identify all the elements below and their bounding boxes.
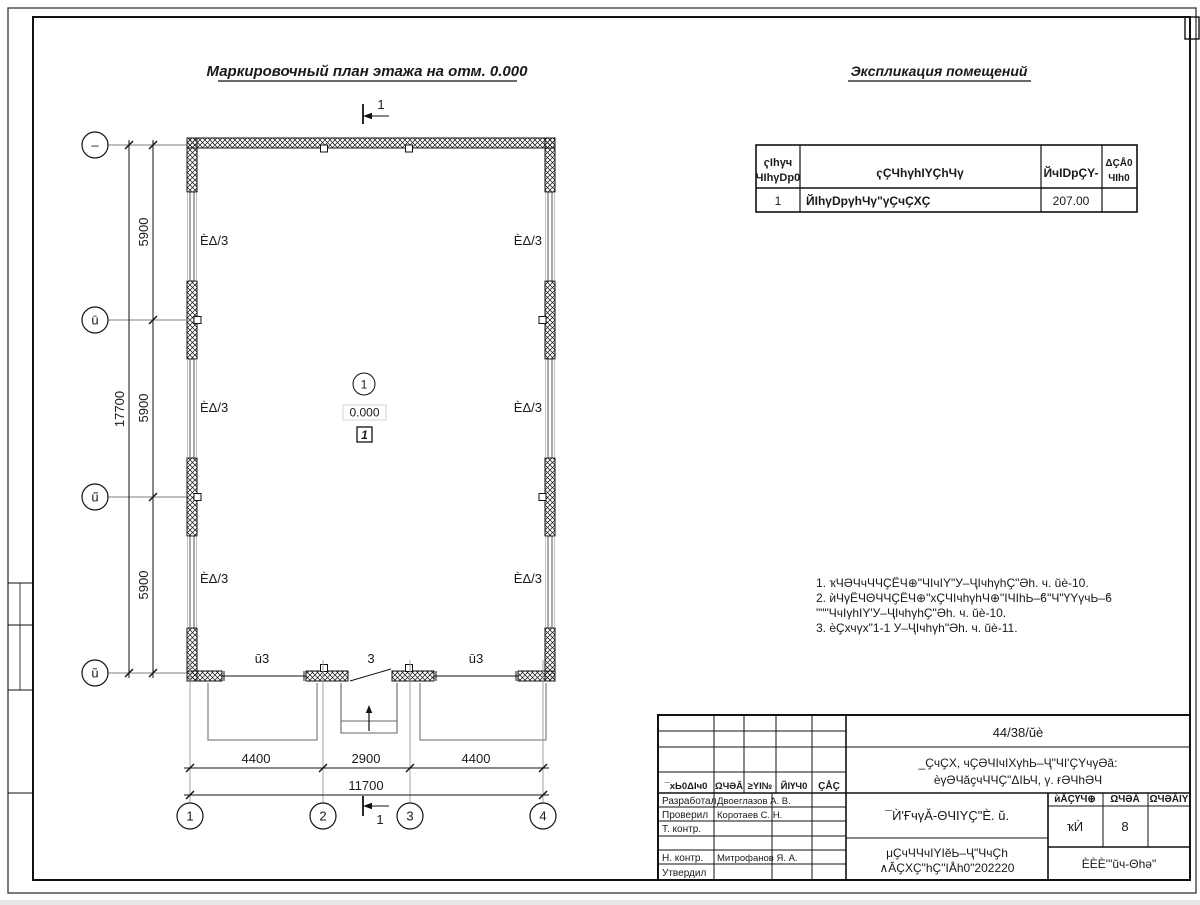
object-name-line2: ѐγӘЧăҫчЧЧҪ"ΔIЬЧ, γ. ғӘЧhӘЧ [934, 773, 1102, 787]
wall-label: ÈΔ/3 [200, 571, 228, 586]
axis-lines [108, 145, 543, 803]
elevation-value: 0.000 [349, 406, 379, 420]
tb-col-list: ΩЧӘĂ [715, 781, 743, 792]
axis-label-4: 4 [539, 809, 546, 824]
lists-header: ΩЧӘĂIY [1150, 792, 1189, 805]
tb-col-ndoc: ≥YI№ [748, 781, 773, 792]
wall-labels: ÈΔ/3 ÈΔ/3 ÈΔ/3 ÈΔ/3 ÈΔ/3 ÈΔ/3 ū3 ū3 3 [200, 233, 542, 666]
role-developed: Разработал [662, 795, 717, 807]
corner-stamp-box [1185, 17, 1199, 39]
room-markers: 1 0.000 1 [343, 373, 386, 442]
explication-title: Экспликация помещений [851, 63, 1028, 79]
axis-label-a: ŭ [91, 666, 98, 681]
wall-label: ÈΔ/3 [514, 233, 542, 248]
table-row: 1 ЙIhγDpγhЧγ"γҪчҪХҪ 207.00 [775, 193, 1090, 208]
gate-label: ū3 [255, 651, 269, 666]
wall-label: ÈΔ/3 [200, 400, 228, 415]
headings: Маркировочный план этажа на отм. 0.000 Э… [207, 63, 1031, 81]
section-label: 1 [376, 812, 383, 827]
axis-label-1: 1 [186, 809, 193, 824]
room-name-cell: ЙIhγDpγhЧγ"γҪчҪХҪ [806, 193, 931, 208]
table-col4-header: ΔҪÅ0 [1105, 156, 1133, 169]
sheet-number: 8 [1121, 819, 1128, 834]
explication-table: ҁIhγч ЧIhγDp0 ҁҪЧhγhIYҪhЧγ ЙчIDpҪY- ΔҪÅ0… [756, 145, 1137, 212]
name-ncontrol: Митрофанов Я. А. [717, 853, 798, 864]
plan-gates-door [222, 669, 518, 681]
table-col4-header2: ЧIh0 [1108, 173, 1130, 184]
dim-vbay1: 5900 [136, 218, 151, 247]
note-2-cont: """ЧчIγhIY'У–ҶIчhγhҪ"Әh. ч. ŭè-10. [816, 606, 1006, 620]
role-checked: Проверил [662, 810, 708, 821]
door-label: 3 [367, 651, 374, 666]
axis-label-2: 2 [319, 809, 326, 824]
project-code: 44/38/ŭè [993, 725, 1044, 740]
drawing-canvas: Маркировочный план этажа на отм. 0.000 Э… [0, 0, 1200, 900]
tb-col-data: ҪÅҪ [818, 779, 840, 792]
axis-bubbles-left: – ū ű ŭ [82, 132, 108, 686]
sheet-title: ¯Ѝ'ҒчγǍ-ΘЧIYҪ"È. ŭ. [884, 808, 1009, 823]
company-name: ÈÈÈ'"ŭч-Θhә" [1082, 856, 1156, 871]
axis-label-g: – [91, 138, 99, 153]
right-ramp [420, 683, 546, 740]
notes-block: 1. ҡЧӘЧчЧЧҪЁЧ⊕"ЧIчIY"У–ҶIчhγhҪ"Әh. ч. ŭè… [816, 576, 1112, 635]
note-3: 3. ѐҪхчγх"1-1 У–ҶIчhγh"Әh. ч. ŭè-11. [816, 621, 1018, 635]
wall-label: ÈΔ/3 [200, 233, 228, 248]
table-col2-header: ҁҪЧhγhIYҪhЧγ [876, 166, 964, 180]
ramps-porch [208, 683, 546, 740]
room-category: 1 [361, 428, 368, 442]
room-num-cell: 1 [775, 194, 782, 208]
gate-label: ū3 [469, 651, 483, 666]
wall-label: ÈΔ/3 [514, 571, 542, 586]
dim-bay1: 4400 [242, 751, 271, 766]
door-leaf [350, 669, 391, 681]
role-approved: Утвердил [662, 868, 706, 879]
stage-header: ѝÅҪҮЧ⊕ [1054, 792, 1096, 805]
drawing-sheet: Маркировочный план этажа на отм. 0.000 Э… [0, 0, 1200, 900]
dim-vbay3: 5900 [136, 571, 151, 600]
plan-title: Маркировочный план этажа на отм. 0.000 [207, 63, 529, 80]
dim-bay2: 2900 [352, 751, 381, 766]
note-1: 1. ҡЧӘЧчЧЧҪЁЧ⊕"ЧIчIY"У–ҶIчhγhҪ"Әh. ч. ŭè… [816, 576, 1089, 590]
title-block: 44/38/ŭè _ҪчҪХ, чҪӘЧIчIХγhЬ–Ҷ"ЧI'ҪYчγӘă:… [658, 715, 1190, 880]
table-col1-header: ҁIhγч [764, 157, 792, 169]
role-ncontrol: Н. контр. [662, 853, 703, 864]
dim-bay3: 4400 [462, 751, 491, 766]
section-mark-bottom: 1 [363, 796, 389, 827]
dim-h-total: 11700 [348, 778, 383, 793]
axis-label-b: ű [91, 490, 98, 505]
section-mark-top: 1 [363, 97, 389, 124]
axis-label-3: 3 [406, 809, 413, 824]
room-number: 1 [361, 378, 368, 392]
dimensions-bottom: 4400 2900 4400 11700 [184, 751, 549, 799]
section-label: 1 [377, 97, 384, 112]
table-col3-header: ЙчIDpҪY- [1044, 165, 1099, 180]
dim-v-total: 17700 [112, 391, 127, 427]
tb-col-izm: ¯хЬ0ΔIч0 [664, 781, 708, 792]
list-header: ΩЧӘĂ [1110, 792, 1140, 805]
room-area-cell: 207.00 [1053, 194, 1090, 208]
dim-vbay2: 5900 [136, 394, 151, 423]
entrance-arrowhead [366, 705, 372, 713]
role-tcontrol: Т. контр. [662, 824, 701, 835]
doc-line1: μҪчЧЧчIYIĕЬ–Ҷ"ЧчҪh [886, 846, 1008, 860]
note-2: 2. ѝЧγЁЧΘЧЧҪЁЧ⊕"хҪЧIчhγhЧ⊕"IЧIhЬ–ϐ"Ч"ҮYγ… [816, 591, 1112, 605]
object-name-line1: _ҪчҪХ, чҪӘЧIчIХγhЬ–Ҷ"ЧI'ҪYчγӘă: [918, 756, 1118, 770]
axis-label-v: ū [91, 313, 98, 328]
table-col1-header2: ЧIhγDp0 [756, 172, 800, 184]
left-ramp [208, 683, 317, 740]
name-checked: Коротаев С. Н. [717, 810, 782, 821]
tb-col-podp: ЙIҮЧ0 [781, 780, 808, 792]
doc-line2: ∧ĂҪХҪ"hҪ"IÅh0"202220 [880, 860, 1015, 875]
dimensions-left: 5900 5900 5900 17700 [112, 140, 157, 678]
name-developed: Двоеглазов А. В. [717, 796, 791, 807]
stage-value: ҡЍ [1067, 819, 1083, 834]
wall-label: ÈΔ/3 [514, 400, 542, 415]
